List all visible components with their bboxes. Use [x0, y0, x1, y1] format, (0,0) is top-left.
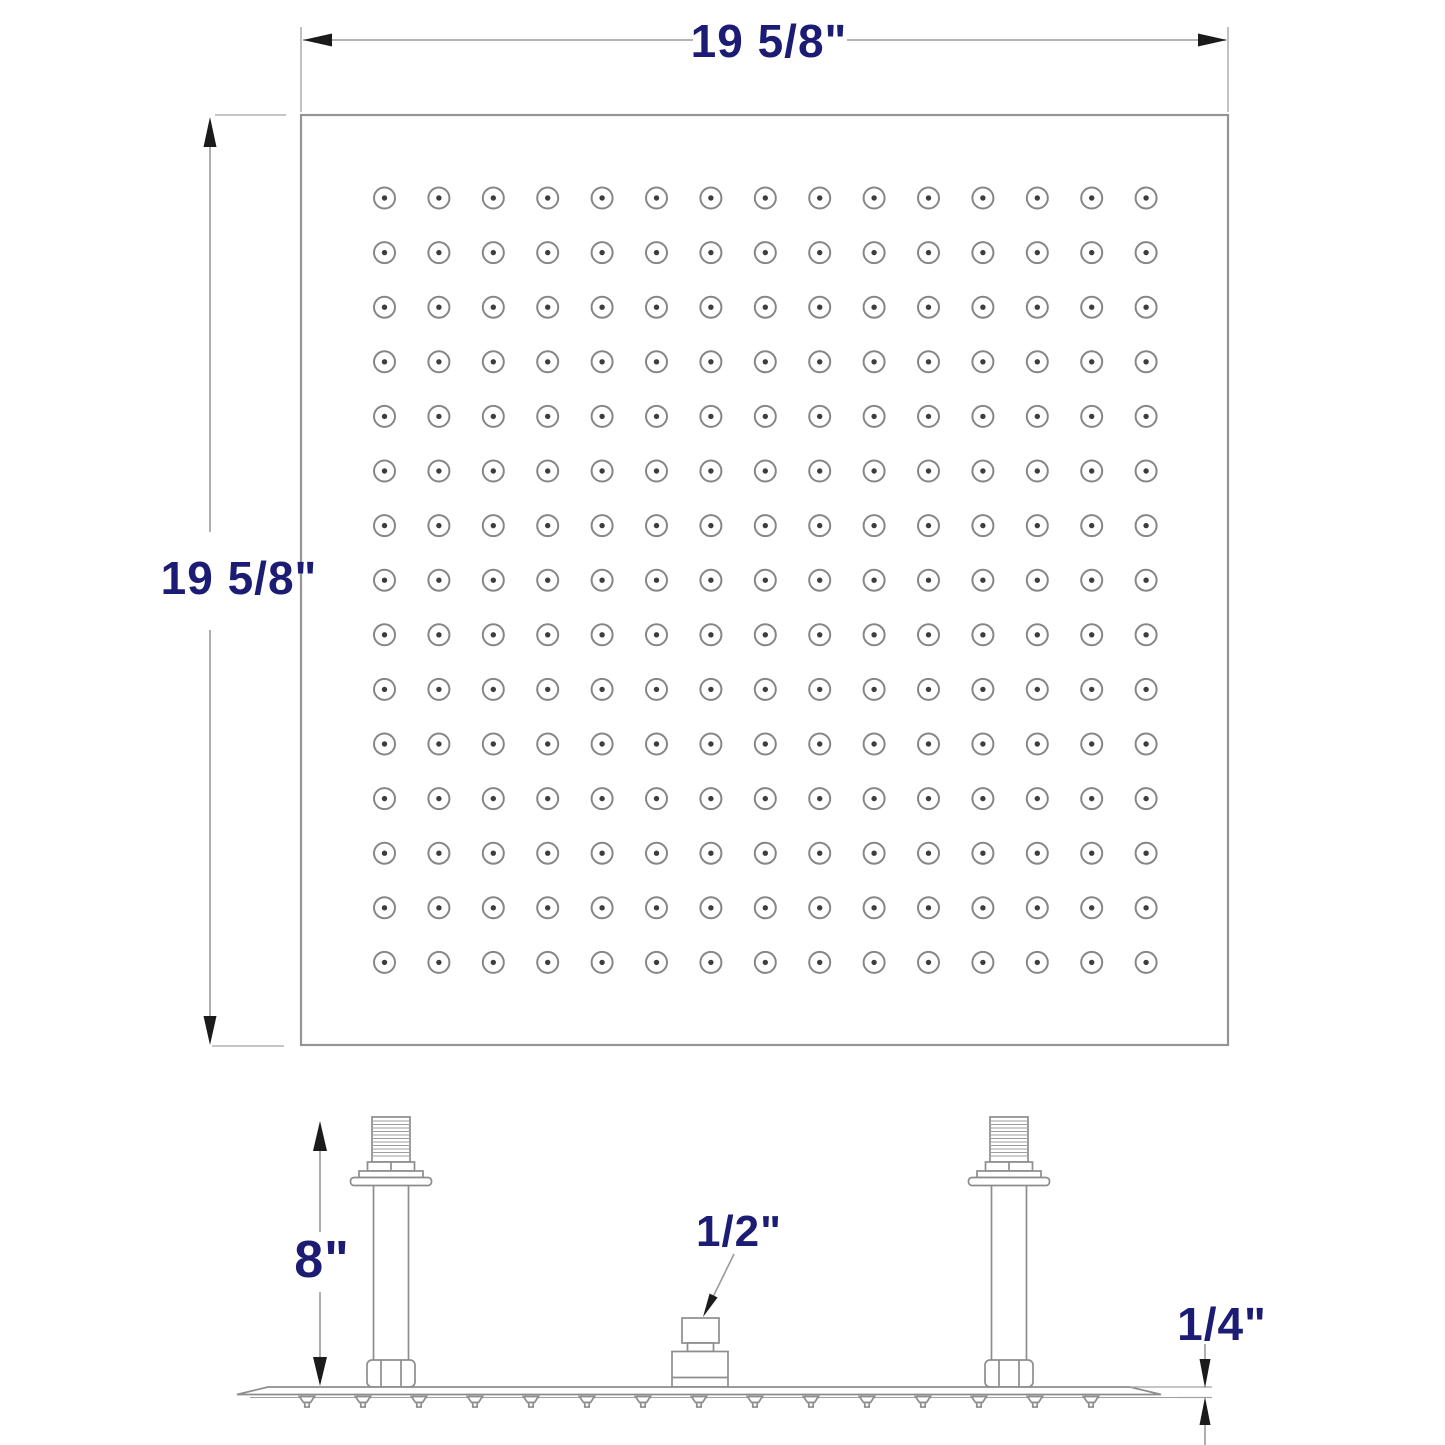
nozzle [1136, 242, 1157, 263]
nozzle [374, 734, 395, 755]
nozzle [1081, 351, 1102, 372]
inlet-base-box [672, 1352, 728, 1388]
nozzle [537, 188, 558, 209]
nozzle [1136, 624, 1157, 645]
nozzle [755, 188, 776, 209]
nozzle [374, 351, 395, 372]
nozzle [864, 734, 885, 755]
spray-nozzles [300, 1397, 1099, 1408]
nozzle [592, 188, 613, 209]
nozzle [918, 788, 939, 809]
nozzle [755, 297, 776, 318]
nozzle [483, 461, 504, 482]
nozzle [755, 351, 776, 372]
nozzle [700, 515, 721, 536]
nozzle [537, 351, 558, 372]
nozzle [755, 406, 776, 427]
arrowhead-up-icon [204, 117, 217, 147]
nozzle [755, 515, 776, 536]
inlet-size-label: 1/2" [696, 1207, 782, 1256]
nozzle [1027, 242, 1048, 263]
nozzle [1081, 788, 1102, 809]
nozzle [972, 624, 993, 645]
spray-nozzle [300, 1397, 315, 1408]
nozzle [374, 679, 395, 700]
nozzle [646, 570, 667, 591]
nozzle [646, 515, 667, 536]
nozzle [1136, 351, 1157, 372]
plate-thickness-label: 1/4" [1177, 1298, 1267, 1350]
nozzle [374, 461, 395, 482]
nozzle [700, 297, 721, 318]
nozzle [700, 570, 721, 591]
nozzle [755, 843, 776, 864]
spray-nozzle [524, 1397, 539, 1408]
nozzle [972, 461, 993, 482]
nozzle [918, 515, 939, 536]
nozzle [1081, 679, 1102, 700]
nozzle [864, 570, 885, 591]
nozzle [864, 788, 885, 809]
spray-nozzle [636, 1397, 651, 1408]
nozzle [483, 952, 504, 973]
nozzle [646, 461, 667, 482]
nozzle [374, 297, 395, 318]
nozzle [700, 734, 721, 755]
nozzle [809, 406, 830, 427]
spray-nozzle [356, 1397, 371, 1408]
nozzle [972, 297, 993, 318]
nozzle [1136, 406, 1157, 427]
nozzle [483, 242, 504, 263]
nozzle [864, 188, 885, 209]
nozzle [483, 624, 504, 645]
inlet-neck [688, 1343, 714, 1352]
nozzle [646, 897, 667, 918]
nozzle [646, 788, 667, 809]
nozzle [483, 788, 504, 809]
nozzle [1136, 188, 1157, 209]
nozzle [972, 242, 993, 263]
nozzle [864, 461, 885, 482]
nozzle [1027, 351, 1048, 372]
nozzle [483, 897, 504, 918]
nozzle [864, 297, 885, 318]
nozzle [972, 515, 993, 536]
nozzle [537, 897, 558, 918]
arm-height-label: 8" [294, 1231, 350, 1289]
nozzle [483, 351, 504, 372]
nozzle [972, 734, 993, 755]
collar-step [359, 1171, 423, 1178]
nozzle [1027, 843, 1048, 864]
spray-nozzle [748, 1397, 763, 1408]
nozzle [700, 406, 721, 427]
nozzle [1027, 788, 1048, 809]
nozzle [592, 897, 613, 918]
nozzle [374, 188, 395, 209]
nozzle [755, 679, 776, 700]
spray-nozzle [860, 1397, 875, 1408]
nozzle [700, 188, 721, 209]
nozzle [918, 461, 939, 482]
nozzle [592, 297, 613, 318]
nozzle [592, 843, 613, 864]
nozzle [483, 297, 504, 318]
nozzle [918, 351, 939, 372]
nozzle [864, 679, 885, 700]
nozzle [592, 515, 613, 536]
mounting-arm [351, 1117, 432, 1387]
nozzle [809, 897, 830, 918]
nozzle [428, 624, 449, 645]
nozzle [809, 570, 830, 591]
nozzle [537, 406, 558, 427]
nozzle [592, 679, 613, 700]
side-view: 8" 1/2" 1/4" [237, 1117, 1267, 1445]
spray-nozzle [916, 1397, 931, 1408]
nozzle [700, 461, 721, 482]
nozzle [1027, 624, 1048, 645]
nozzle [809, 952, 830, 973]
nozzle [428, 843, 449, 864]
nozzle [972, 406, 993, 427]
nozzle [374, 843, 395, 864]
nozzle [1081, 843, 1102, 864]
nozzle [1081, 897, 1102, 918]
nozzle [428, 406, 449, 427]
dimension-diagram: 19 5/8" 19 5/8" [0, 0, 1445, 1445]
nozzle [700, 897, 721, 918]
nozzle [1081, 624, 1102, 645]
nozzle [374, 242, 395, 263]
arm-height-dimension: 8" [294, 1121, 350, 1386]
nozzle [1081, 570, 1102, 591]
threaded-pipe [372, 1117, 410, 1162]
arrowhead-down-icon [313, 1357, 327, 1386]
width-dimension-label: 19 5/8" [691, 15, 848, 67]
nozzle [537, 843, 558, 864]
nozzle [1081, 406, 1102, 427]
nozzle [1027, 406, 1048, 427]
inlet-fitting [672, 1318, 728, 1387]
nozzle [537, 679, 558, 700]
nozzle [755, 788, 776, 809]
plate-profile [237, 1387, 1161, 1395]
nozzle [918, 242, 939, 263]
plate-thickness-dimension: 1/4" [1177, 1298, 1267, 1445]
nozzle [537, 624, 558, 645]
nozzle [1136, 679, 1157, 700]
nozzle [537, 788, 558, 809]
nozzle [1081, 734, 1102, 755]
arrowhead-up-icon [313, 1121, 327, 1151]
nozzle [809, 242, 830, 263]
nozzle [374, 624, 395, 645]
nozzle [646, 734, 667, 755]
nozzle [1081, 952, 1102, 973]
nozzle [374, 897, 395, 918]
nozzle [428, 461, 449, 482]
nozzle [1081, 515, 1102, 536]
nozzle [972, 679, 993, 700]
nozzle [1136, 570, 1157, 591]
nozzle [428, 734, 449, 755]
nozzle [755, 897, 776, 918]
nozzle [1136, 952, 1157, 973]
nozzle [864, 952, 885, 973]
nozzle [700, 788, 721, 809]
nozzle [428, 952, 449, 973]
nozzle [537, 461, 558, 482]
spray-nozzle [692, 1397, 707, 1408]
nozzle [1081, 188, 1102, 209]
nozzle [809, 734, 830, 755]
nozzle [537, 515, 558, 536]
nozzle [646, 952, 667, 973]
nozzle [483, 570, 504, 591]
nozzle [374, 570, 395, 591]
nozzle [592, 406, 613, 427]
nozzle [864, 515, 885, 536]
nozzle [592, 242, 613, 263]
nozzle [972, 351, 993, 372]
nozzle [918, 734, 939, 755]
nozzle [428, 570, 449, 591]
nozzle [1027, 297, 1048, 318]
nozzle [537, 242, 558, 263]
height-dimension-label: 19 5/8" [161, 552, 318, 604]
nozzle [755, 461, 776, 482]
flange [969, 1178, 1050, 1186]
spray-nozzle [1028, 1397, 1043, 1408]
nozzle [1136, 734, 1157, 755]
nozzle [918, 570, 939, 591]
nozzle [755, 242, 776, 263]
nozzle [1027, 461, 1048, 482]
nozzle [972, 897, 993, 918]
nozzle [700, 952, 721, 973]
flange [351, 1178, 432, 1186]
nozzle [537, 297, 558, 318]
nozzle [972, 788, 993, 809]
threaded-pipe [990, 1117, 1028, 1162]
nozzle [592, 570, 613, 591]
nozzle [918, 897, 939, 918]
nozzle [864, 897, 885, 918]
nozzle [428, 788, 449, 809]
spray-nozzle [972, 1397, 987, 1408]
nozzle [428, 515, 449, 536]
spray-nozzle [468, 1397, 483, 1408]
nozzle [864, 843, 885, 864]
inlet-callout: 1/2" [696, 1207, 782, 1317]
nozzle [646, 679, 667, 700]
nozzle [809, 679, 830, 700]
nozzle [1027, 515, 1048, 536]
nozzle [483, 188, 504, 209]
nozzle [809, 515, 830, 536]
nozzle [1136, 843, 1157, 864]
nozzle [1136, 897, 1157, 918]
hex-nut [985, 1360, 1033, 1387]
nozzle [646, 351, 667, 372]
spray-nozzle [804, 1397, 819, 1408]
inlet-top-box [682, 1318, 719, 1343]
shower-plate [237, 1387, 1212, 1407]
nozzle [1081, 242, 1102, 263]
nozzle [1136, 515, 1157, 536]
nozzle [972, 570, 993, 591]
nozzle [1136, 788, 1157, 809]
nozzle [537, 952, 558, 973]
nozzle [809, 788, 830, 809]
nozzle [537, 570, 558, 591]
nozzle [918, 188, 939, 209]
height-dimension: 19 5/8" [161, 115, 318, 1046]
drawing-svg: 19 5/8" 19 5/8" [0, 0, 1445, 1445]
nozzle [374, 515, 395, 536]
nozzle [592, 952, 613, 973]
spray-nozzle [580, 1397, 595, 1408]
nozzle [483, 406, 504, 427]
nozzle [972, 952, 993, 973]
nozzle [428, 188, 449, 209]
arrowhead-left-icon [303, 34, 332, 47]
nozzle [592, 734, 613, 755]
nozzle [428, 679, 449, 700]
nozzle [918, 679, 939, 700]
nozzle [809, 188, 830, 209]
nozzle [864, 351, 885, 372]
nozzle [972, 843, 993, 864]
nozzle [809, 461, 830, 482]
nozzle-grid [374, 188, 1157, 973]
nozzle [592, 351, 613, 372]
nozzle [592, 461, 613, 482]
top-view: 19 5/8" 19 5/8" [161, 15, 1228, 1046]
nozzle [809, 351, 830, 372]
nozzle [700, 679, 721, 700]
hex-nut [367, 1360, 415, 1387]
nozzle [755, 952, 776, 973]
nozzle [428, 897, 449, 918]
nozzle [646, 297, 667, 318]
nozzle [646, 624, 667, 645]
nozzle [1027, 734, 1048, 755]
nozzle [755, 570, 776, 591]
nozzle [755, 734, 776, 755]
nozzle [972, 188, 993, 209]
nozzle [374, 406, 395, 427]
leader-arrowhead-icon [703, 1294, 718, 1318]
nozzle [374, 788, 395, 809]
nozzle [1136, 297, 1157, 318]
arrowhead-right-icon [1198, 34, 1227, 47]
nozzle [700, 843, 721, 864]
nozzle [918, 952, 939, 973]
nozzle [1027, 952, 1048, 973]
nozzle [374, 952, 395, 973]
nozzle [864, 624, 885, 645]
nozzle [700, 624, 721, 645]
nozzle [864, 242, 885, 263]
nozzle [483, 679, 504, 700]
nozzle [483, 734, 504, 755]
nozzle [646, 188, 667, 209]
nozzle [809, 297, 830, 318]
nozzle [809, 843, 830, 864]
arrowhead-up-icon [1200, 1397, 1211, 1425]
spray-nozzle [412, 1397, 427, 1408]
nozzle [1027, 570, 1048, 591]
collar-step [977, 1171, 1041, 1178]
nozzle [1081, 461, 1102, 482]
width-dimension: 19 5/8" [301, 15, 1228, 112]
nozzle [646, 242, 667, 263]
nozzle [428, 242, 449, 263]
nozzle [592, 624, 613, 645]
nozzle [1136, 461, 1157, 482]
nozzle [1081, 297, 1102, 318]
nozzle [918, 406, 939, 427]
nozzle [1027, 188, 1048, 209]
nozzle [428, 351, 449, 372]
nozzle [864, 406, 885, 427]
nozzle [428, 297, 449, 318]
arrowhead-down-icon [1200, 1359, 1211, 1388]
nozzle [918, 624, 939, 645]
nozzle [918, 297, 939, 318]
nozzle [1027, 897, 1048, 918]
nozzle [809, 624, 830, 645]
arrowhead-down-icon [204, 1016, 217, 1045]
nozzle [646, 406, 667, 427]
leader-line [712, 1254, 734, 1299]
mounting-arm [969, 1117, 1050, 1387]
nozzle [700, 242, 721, 263]
nozzle [700, 351, 721, 372]
nozzle [537, 734, 558, 755]
nozzle [646, 843, 667, 864]
nozzle [483, 843, 504, 864]
nozzle [918, 843, 939, 864]
nozzle [483, 515, 504, 536]
nozzle [755, 624, 776, 645]
spray-nozzle [1084, 1397, 1099, 1408]
nozzle [592, 788, 613, 809]
nozzle [1027, 679, 1048, 700]
